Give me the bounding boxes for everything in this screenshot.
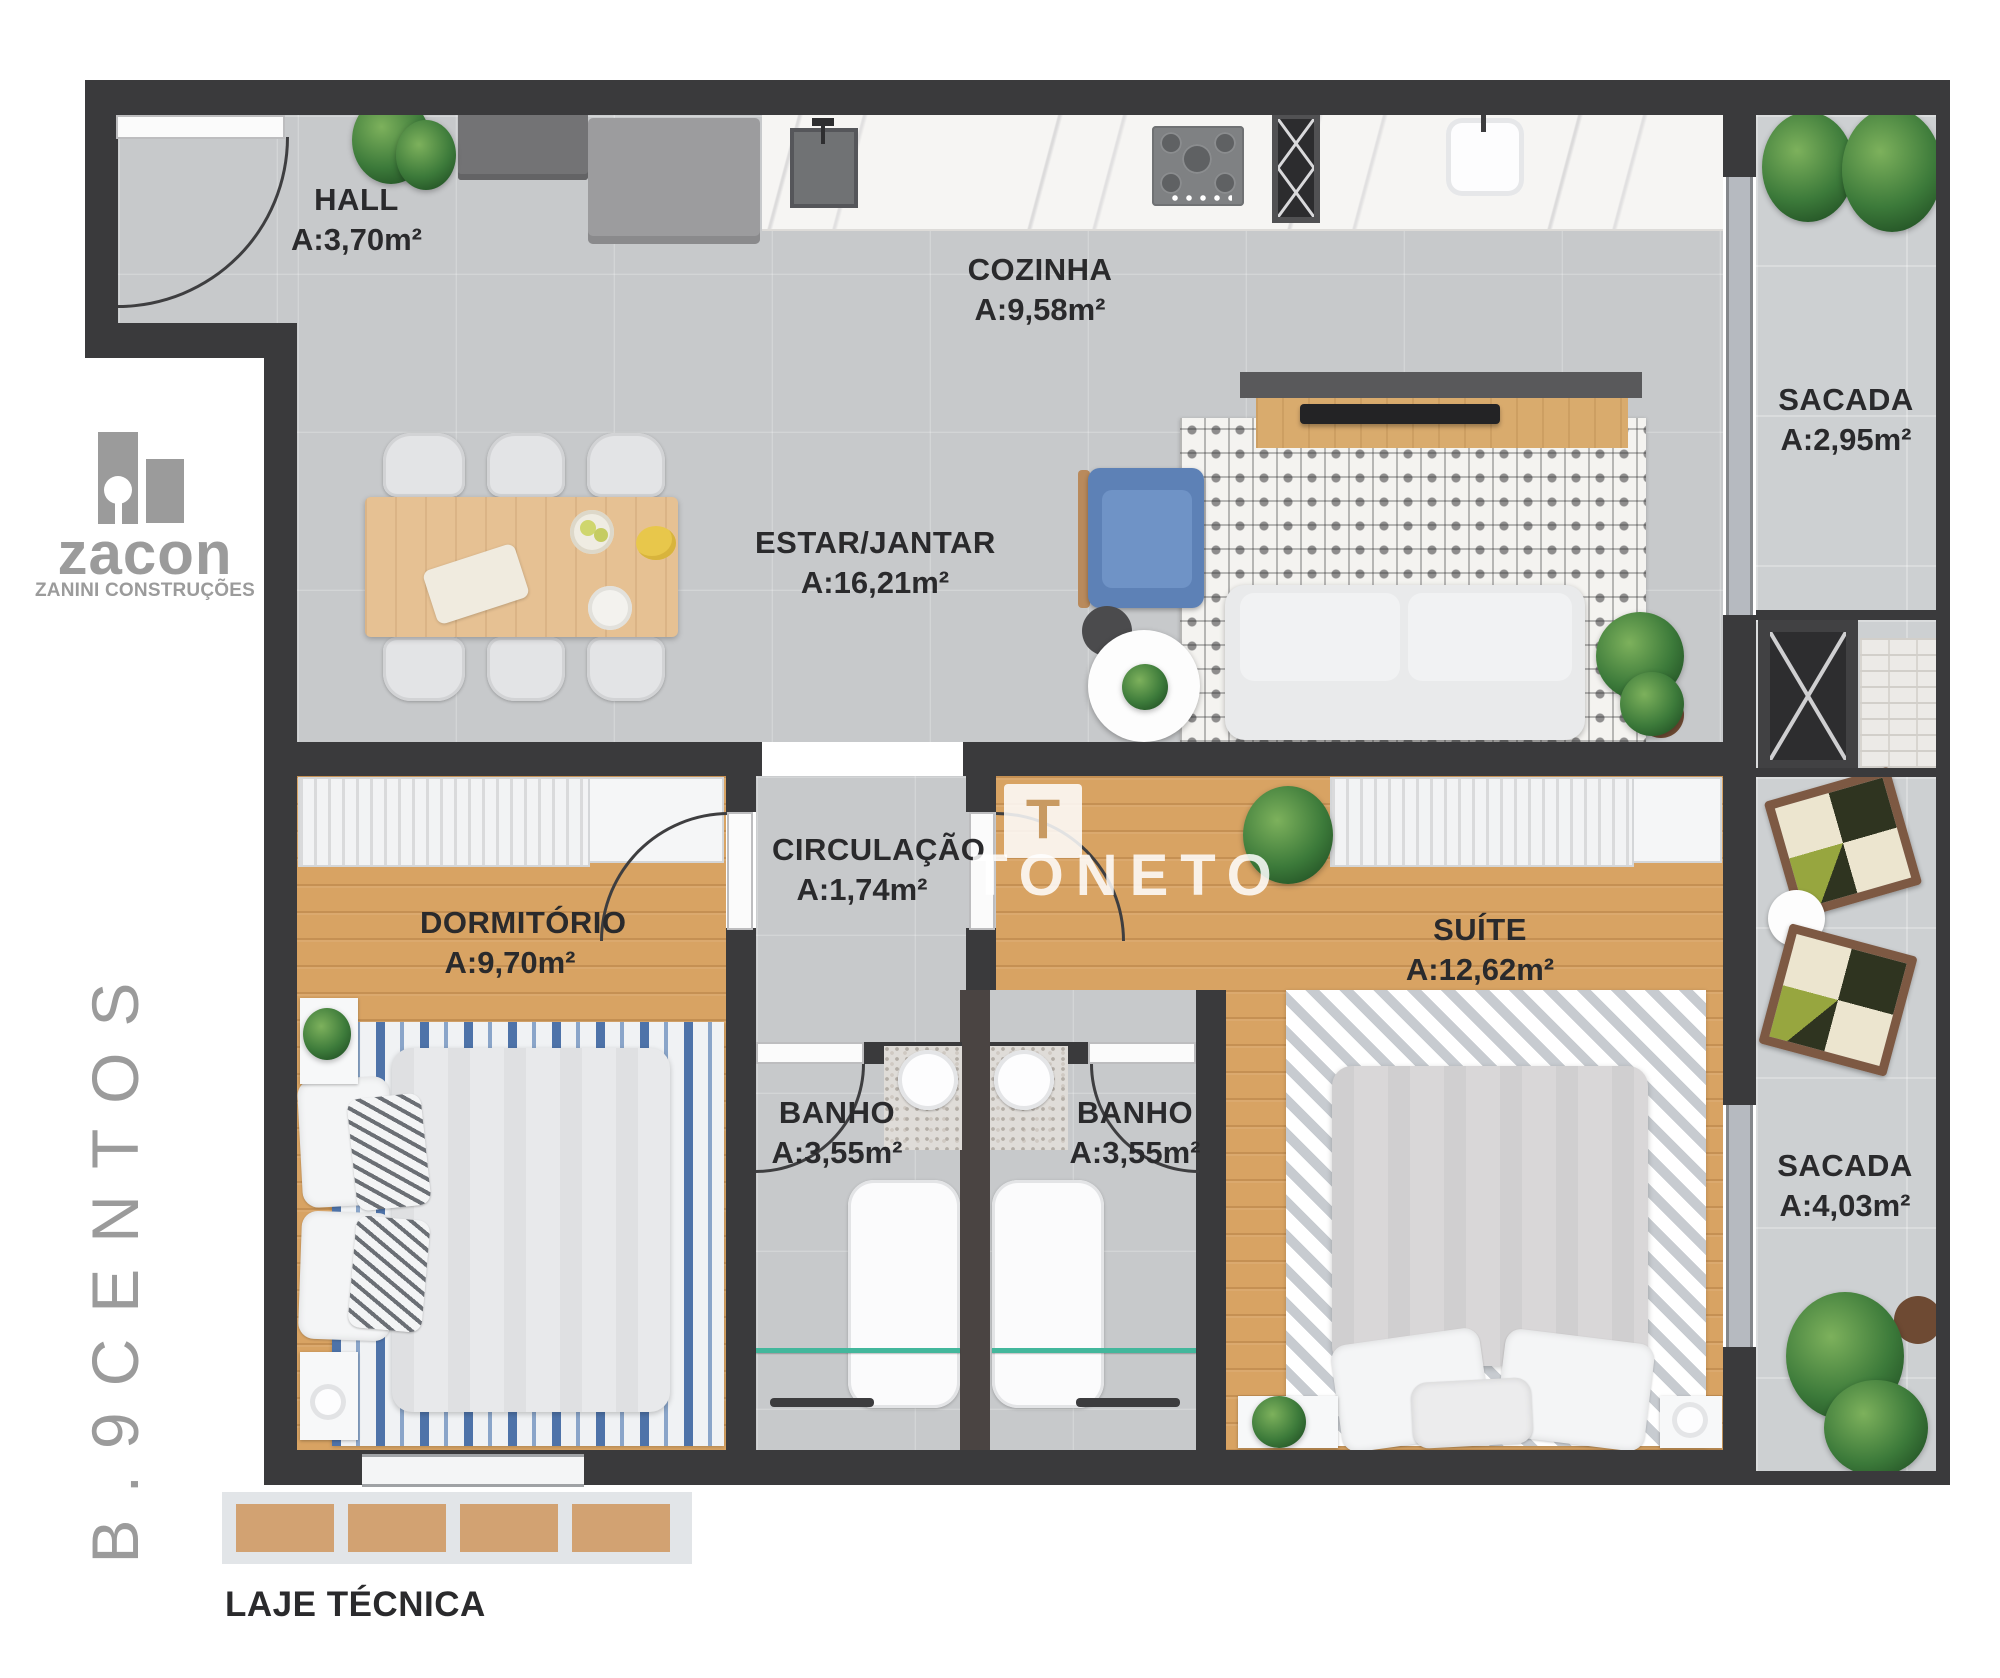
kitchen-faucet-icon: [812, 118, 834, 126]
bathroom-vanity: [848, 1180, 960, 1408]
burner-icon: [1214, 132, 1236, 154]
armchair-cushion: [1102, 490, 1192, 588]
room-label-hall: HALL A:3,70m²: [269, 182, 444, 257]
fridge: [588, 118, 760, 244]
suite-wardrobe: [1332, 779, 1632, 865]
coffee-table-plant: [1122, 664, 1168, 710]
wall-left-upper: [85, 80, 118, 358]
wall-right-b: [1723, 615, 1756, 777]
shaft-x-window: [1770, 632, 1846, 760]
suite-lamp: [1672, 1402, 1708, 1438]
shower-glass: [756, 1348, 960, 1353]
wall-shaft-top: [1756, 610, 1950, 620]
dining-chair: [383, 433, 465, 497]
suite-wardrobe-plain: [1634, 779, 1720, 861]
bathroom-door-leaf: [758, 1044, 862, 1062]
room-name: HALL: [269, 182, 444, 218]
burner-center-icon: [1182, 144, 1212, 174]
towel-bar-icon: [770, 1398, 874, 1407]
dining-chair: [587, 433, 665, 497]
cooktop-knobs: [1168, 194, 1232, 202]
burner-icon: [1214, 172, 1236, 194]
room-area: A:2,95m²: [1758, 423, 1934, 457]
dining-chair: [487, 637, 565, 701]
wall-corridor-right-top: [966, 776, 996, 812]
room-area: A:9,58m²: [950, 293, 1130, 327]
wall-corridor-right-bottom: [966, 928, 996, 990]
logo-circle-icon: [104, 476, 132, 504]
burner-icon: [1160, 172, 1182, 194]
bedroom-accent-pillow: [347, 1215, 430, 1333]
balcony-bottom-edge: [1756, 1471, 1950, 1485]
hall-plant: [396, 120, 456, 190]
room-name: BANHO: [1045, 1095, 1225, 1131]
balcony-rail: [1936, 115, 1950, 1478]
burner-icon: [1160, 132, 1182, 154]
wall-mid-left: [297, 742, 762, 776]
bathroom-door-leaf: [1090, 1044, 1194, 1062]
room-label-sacada-superior: SACADA A:2,95m²: [1758, 382, 1934, 457]
brick-panel: [1860, 638, 1946, 770]
watermark-text: TONETO: [898, 842, 1358, 909]
suite-pillow-small: [1410, 1377, 1533, 1449]
room-name: ESTAR/JANTAR: [755, 525, 995, 561]
column-x-glass: [1278, 119, 1314, 217]
bedroom-duvet: [392, 1048, 670, 1412]
wall-bathroom-left-side: [726, 990, 756, 1450]
room-label-sacada-inferior: SACADA A:4,03m²: [1757, 1148, 1933, 1223]
room-label-dormitorio: DORMITÓRIO A:9,70m²: [420, 905, 600, 980]
room-area: A:4,03m²: [1757, 1189, 1933, 1223]
kitchen-faucet-stem: [821, 126, 825, 144]
tv: [1300, 404, 1500, 424]
laje-panel: [348, 1504, 446, 1552]
room-name: SACADA: [1757, 1148, 1933, 1184]
wall-corridor-left-top: [726, 776, 756, 812]
sofa-cushion: [1408, 593, 1572, 681]
suite-nightstand-plant: [1252, 1396, 1306, 1448]
bathroom-vanity: [992, 1180, 1104, 1408]
x-pattern-icon: [1770, 632, 1846, 760]
wall-right-c: [1723, 777, 1756, 1105]
balcony-plant: [1762, 112, 1854, 222]
logo-subtitle: ZANINI CONSTRUÇÕES: [30, 580, 260, 602]
dining-table: [365, 497, 678, 637]
watermark: TONETO: [898, 842, 1358, 912]
logo-wordmark: zacon: [30, 524, 260, 584]
room-label-cozinha: COZINHA A:9,58m²: [950, 252, 1130, 327]
room-label-estar-jantar: ESTAR/JANTAR A:16,21m²: [755, 525, 995, 600]
room-area: A:16,21m²: [755, 566, 995, 600]
sofa-cushion: [1240, 593, 1400, 681]
room-name: DORMITÓRIO: [420, 905, 600, 941]
wall-right-d: [1723, 1347, 1756, 1450]
bread: [636, 526, 676, 560]
room-label-banho-direito: BANHO A:3,55m²: [1045, 1095, 1225, 1170]
floor-plan-canvas: LAJE TÉCNICA HALL A:3,70m² COZINHA A:9,5…: [0, 0, 2000, 1678]
wall-top: [85, 80, 1950, 115]
laje-tecnica-label: LAJE TÉCNICA: [225, 1585, 486, 1625]
towel-bar-icon: [1076, 1398, 1180, 1407]
wall-mid-right: [963, 742, 1723, 776]
nightstand-plant: [303, 1008, 351, 1060]
dining-chair: [487, 433, 565, 497]
balcony-plant: [1842, 108, 1942, 232]
room-name: COZINHA: [950, 252, 1130, 288]
dining-chair: [383, 637, 465, 701]
watermark-letter: T: [1026, 787, 1060, 850]
logo-stem-icon: [115, 502, 122, 524]
room-name: SACADA: [1758, 382, 1934, 418]
room-area: A:9,70m²: [420, 946, 600, 980]
building-name-vertical: B.9CENTOS: [75, 930, 155, 1590]
wall-shaft-bottom: [1756, 768, 1950, 777]
logo-building-bar-icon: [146, 459, 184, 523]
laje-panel: [572, 1504, 670, 1552]
entry-door-leaf: [118, 117, 283, 137]
fruit: [594, 528, 608, 542]
suite-sliding-door: [1726, 1105, 1753, 1347]
room-area: A:12,62m²: [1390, 953, 1570, 987]
balcony-sliding-door: [1726, 177, 1753, 615]
dining-chair: [587, 637, 665, 701]
wall-right-a: [1723, 115, 1756, 177]
wall-bathroom-right-side: [1196, 990, 1226, 1450]
balcony-plant-large: [1824, 1380, 1928, 1476]
suite-duvet: [1332, 1066, 1648, 1366]
room-label-suite: SUÍTE A:12,62m²: [1390, 912, 1570, 987]
room-label-banho-esquerdo: BANHO A:3,55m²: [747, 1095, 927, 1170]
room-name: SUÍTE: [1390, 912, 1570, 948]
wall-left-main: [264, 323, 297, 1485]
room-name: BANHO: [747, 1095, 927, 1131]
sofa-side-plant: [1620, 672, 1684, 736]
bottom-window: [362, 1454, 584, 1487]
room-area: A:3,70m²: [269, 223, 444, 257]
laje-panel: [460, 1504, 558, 1552]
tv-stand-top: [1240, 372, 1642, 398]
x-pattern-icon: [1278, 119, 1314, 217]
bedroom-door-leaf: [729, 814, 751, 928]
nightstand-dish: [310, 1384, 346, 1420]
plate: [588, 586, 632, 630]
laje-panel: [236, 1504, 334, 1552]
wall-bathroom-divider: [960, 990, 990, 1450]
bedroom-wardrobe: [300, 779, 588, 865]
bedroom-accent-pillow: [346, 1092, 431, 1211]
shower-glass: [992, 1348, 1196, 1353]
room-area: A:3,55m²: [1045, 1136, 1225, 1170]
wall-corridor-left-bottom: [726, 928, 756, 990]
room-area: A:3,55m²: [747, 1136, 927, 1170]
